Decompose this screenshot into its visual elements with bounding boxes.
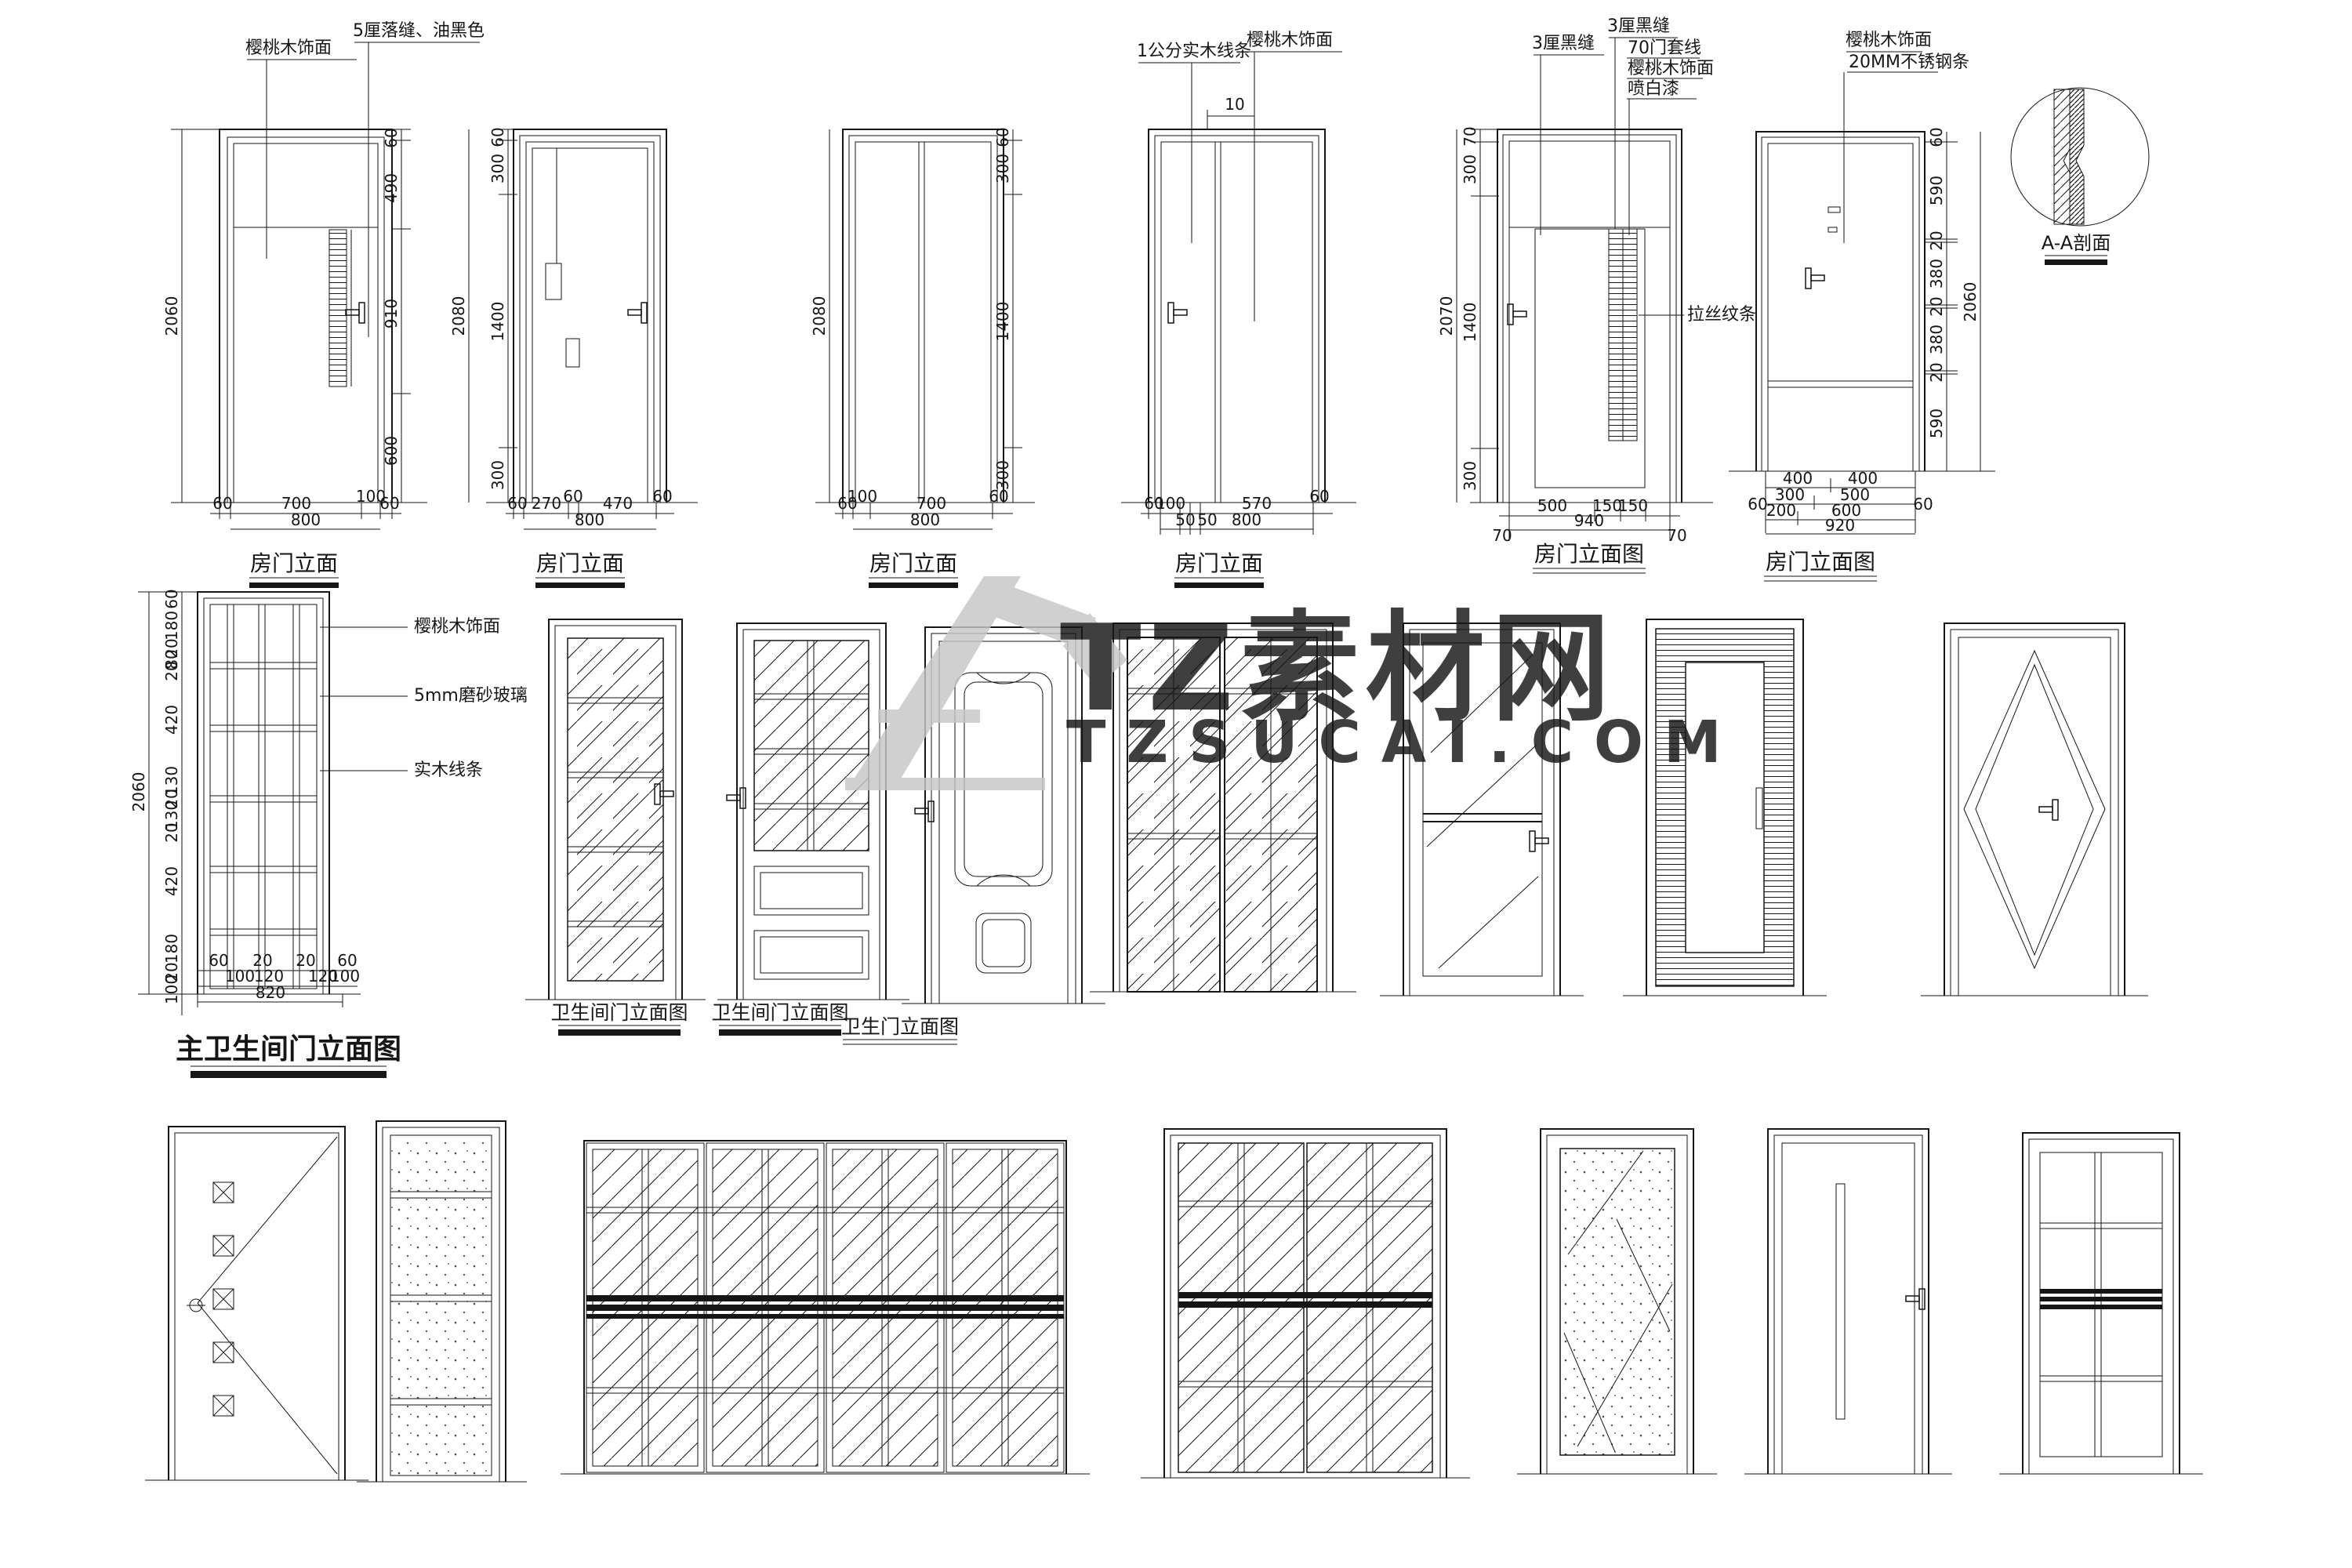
door1-callout2: 5厘落缝、油黑色: [353, 21, 485, 41]
row3-grid-band-door: [1999, 1133, 2203, 1474]
master-callout2: 5mm磨砂玻璃: [414, 686, 528, 706]
door5-callout2: 3厘黑缝: [1607, 16, 1670, 36]
dim: 60: [1748, 495, 1767, 514]
cad-sheet: 樱桃木饰面 5厘落缝、油黑色 60 490 910 600 2060 60 70…: [0, 0, 2352, 1568]
dim: 60: [488, 127, 507, 147]
section-detail: A-A剖面: [2011, 88, 2149, 265]
dim: 20: [162, 661, 181, 681]
dim: 200: [1766, 501, 1796, 520]
master-total: 820: [256, 983, 285, 1002]
dim: 1400: [1461, 303, 1479, 343]
dim: 50: [1197, 510, 1217, 529]
dim: 180: [162, 611, 181, 641]
dim: 380: [1927, 325, 1946, 354]
door4-top-dim: 10: [1225, 95, 1244, 114]
door3-title: 房门立面: [869, 550, 957, 576]
door5-total: 940: [1574, 511, 1604, 530]
dim: 420: [162, 705, 181, 735]
dim: 910: [382, 299, 401, 328]
row2-door-b: 卫生间门立面图: [525, 619, 706, 1036]
door-c-title: 卫生间门立面图: [711, 1001, 848, 1024]
row2-door-c: 卫生间门立面图: [711, 623, 909, 1036]
door5-callout4: 樱桃木饰面: [1628, 59, 1714, 78]
row1-door3: 2080 60 300 1400 300 60 100 700 60 800 房…: [810, 127, 1035, 588]
dim: 60: [162, 589, 181, 608]
dim: 300: [488, 154, 507, 183]
door5-title: 房门立面图: [1534, 541, 1644, 567]
dim: 300: [993, 154, 1012, 183]
door2-total: 800: [575, 510, 604, 529]
row2-master-door: 樱桃木饰面 5mm磨砂玻璃 实木线条 2060 60 180 20 80 20 …: [129, 589, 528, 1078]
door-d-title: 卫生门立面图: [841, 1015, 959, 1038]
dim: 60: [563, 487, 583, 506]
row2-door-g: [1623, 619, 1827, 996]
dim: 20: [1927, 362, 1946, 382]
dim: 60: [652, 487, 672, 506]
dim: 60: [379, 494, 399, 513]
dim: 600: [382, 436, 401, 466]
door5-callout1: 3厘黑缝: [1532, 34, 1595, 53]
door4-title: 房门立面: [1175, 550, 1263, 576]
dim: 60: [993, 127, 1012, 147]
watermark: TZ素材网 TZSUCAI.COM: [845, 576, 1742, 790]
door6-title: 房门立面图: [1766, 549, 1875, 575]
row2-door-h: [1921, 623, 2148, 996]
master-callout1: 樱桃木饰面: [414, 617, 500, 637]
dim: 590: [1927, 408, 1946, 438]
dim: 1400: [993, 302, 1012, 342]
dim: 70: [1492, 526, 1512, 545]
door-b-title: 卫生间门立面图: [550, 1001, 688, 1024]
dim: 180: [162, 934, 181, 964]
dim: 60: [382, 128, 401, 147]
dim: 20: [162, 822, 181, 842]
master-title: 主卫生间门立面图: [176, 1033, 401, 1065]
dim: 380: [1927, 259, 1946, 289]
dim: 490: [382, 173, 401, 203]
door1-callout1: 樱桃木饰面: [245, 38, 332, 58]
dim: 300: [1461, 461, 1479, 491]
master-callout3: 实木线条: [414, 760, 483, 780]
dim: 500: [1537, 496, 1567, 515]
door2-title: 房门立面: [536, 550, 624, 576]
watermark-domain: TZSUCAI.COM: [1066, 709, 1742, 776]
dim: 100: [225, 967, 255, 985]
dim: 300: [1461, 154, 1479, 184]
door4-callout1: 1公分实木线条: [1137, 42, 1251, 61]
dim: 100: [330, 967, 360, 985]
dim: 270: [532, 494, 561, 513]
dim: 100: [162, 975, 181, 1004]
door5-callout3: 70门套线: [1628, 38, 1701, 58]
door4-total: 800: [1232, 510, 1261, 529]
door-elevations-drawing: 樱桃木饰面 5厘落缝、油黑色 60 490 910 600 2060 60 70…: [0, 0, 2352, 1568]
section-title: A-A剖面: [2042, 232, 2111, 254]
dim: 300: [993, 460, 1012, 490]
door3-total: 800: [910, 510, 940, 529]
door5-overall: 2070: [1437, 296, 1456, 336]
row3-sandblast-door: [1517, 1129, 1717, 1474]
dim: 60: [1309, 487, 1329, 506]
row1-door5: 3厘黑缝 3厘黑缝 70门套线 樱桃木饰面 喷白漆 拉丝纹条 70 300 14…: [1437, 16, 1756, 573]
master-overall: 2060: [129, 772, 148, 812]
dim: 470: [603, 494, 633, 513]
dim: 1400: [488, 302, 507, 342]
dim: 100: [848, 487, 877, 506]
door5-callout6: 拉丝纹条: [1687, 305, 1756, 325]
row3-sliding-door: [561, 1141, 1090, 1474]
dim: 420: [162, 866, 181, 896]
row1-door4: 10 1公分实木线条 樱桃木饰面 60 100 570 60 50 50 800…: [1121, 31, 1356, 588]
dim: 20: [1927, 230, 1946, 250]
door6-overall: 2060: [1961, 282, 1980, 322]
door1-total: 800: [291, 510, 321, 529]
door1-overall: 2060: [162, 296, 181, 336]
door6-callout2: 20MM不锈钢条: [1849, 53, 1969, 72]
door6-total: 920: [1825, 516, 1855, 535]
dim: 150: [1618, 496, 1648, 515]
dim: 60: [212, 494, 232, 513]
dim: 20: [1927, 296, 1946, 316]
door1-title: 房门立面: [250, 550, 338, 576]
dim: 60: [507, 494, 527, 513]
row1-door6: 樱桃木饰面 20MM不锈钢条 60 590 20 380 20 380 20 5…: [1729, 31, 1995, 581]
door5-callout5: 喷白漆: [1628, 79, 1679, 99]
dim: 60: [1927, 127, 1946, 147]
door6-callout1: 樱桃木饰面: [1846, 31, 1932, 50]
dim: 590: [1927, 176, 1946, 205]
row3-door1: [145, 1127, 368, 1480]
dim: 60: [989, 487, 1008, 506]
dim: 70: [1667, 526, 1686, 545]
dim: 50: [1175, 510, 1195, 529]
dim: 60: [1913, 495, 1933, 514]
door4-callout2: 樱桃木饰面: [1247, 31, 1333, 50]
row3-double-door: [1141, 1129, 1470, 1478]
door2-overall: 2080: [449, 296, 468, 336]
door3-overall: 2080: [810, 296, 829, 336]
dim: 300: [488, 460, 507, 490]
row3-bar-handle-door: [1744, 1129, 1952, 1474]
dim: 70: [1461, 126, 1479, 146]
row1-door1: 樱桃木饰面 5厘落缝、油黑色 60 490 910 600 2060 60 70…: [162, 21, 485, 588]
row1-door2: 60 300 1400 300 2080 60 270 60 470 60 80…: [449, 127, 698, 588]
row3-door2: [357, 1121, 527, 1482]
